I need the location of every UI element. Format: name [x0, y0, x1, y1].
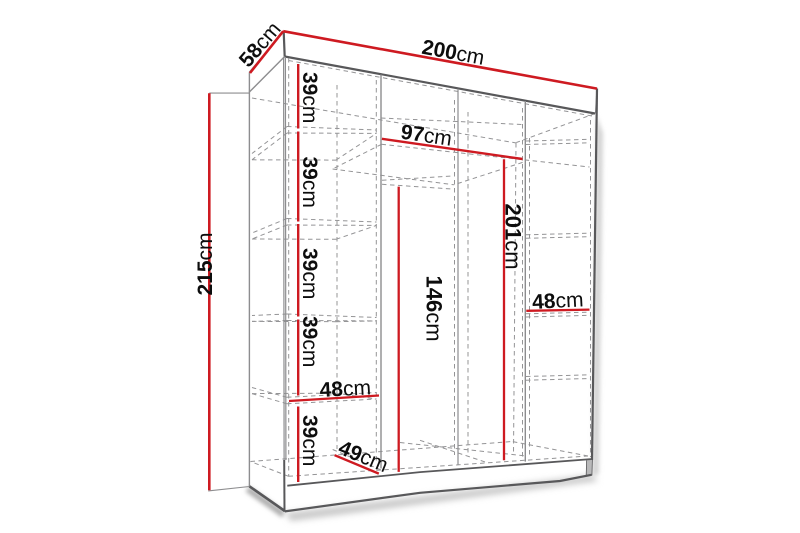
svg-text:146cm: 146cm [422, 276, 447, 342]
svg-text:39cm: 39cm [298, 415, 321, 466]
svg-text:215cm: 215cm [194, 232, 217, 295]
svg-text:39cm: 39cm [298, 248, 321, 299]
svg-text:39cm: 39cm [298, 157, 321, 208]
svg-text:201cm: 201cm [501, 204, 526, 270]
svg-text:48cm: 48cm [532, 288, 584, 314]
svg-text:39cm: 39cm [298, 72, 321, 123]
svg-text:39cm: 39cm [298, 316, 321, 367]
svg-text:48cm: 48cm [319, 376, 371, 402]
